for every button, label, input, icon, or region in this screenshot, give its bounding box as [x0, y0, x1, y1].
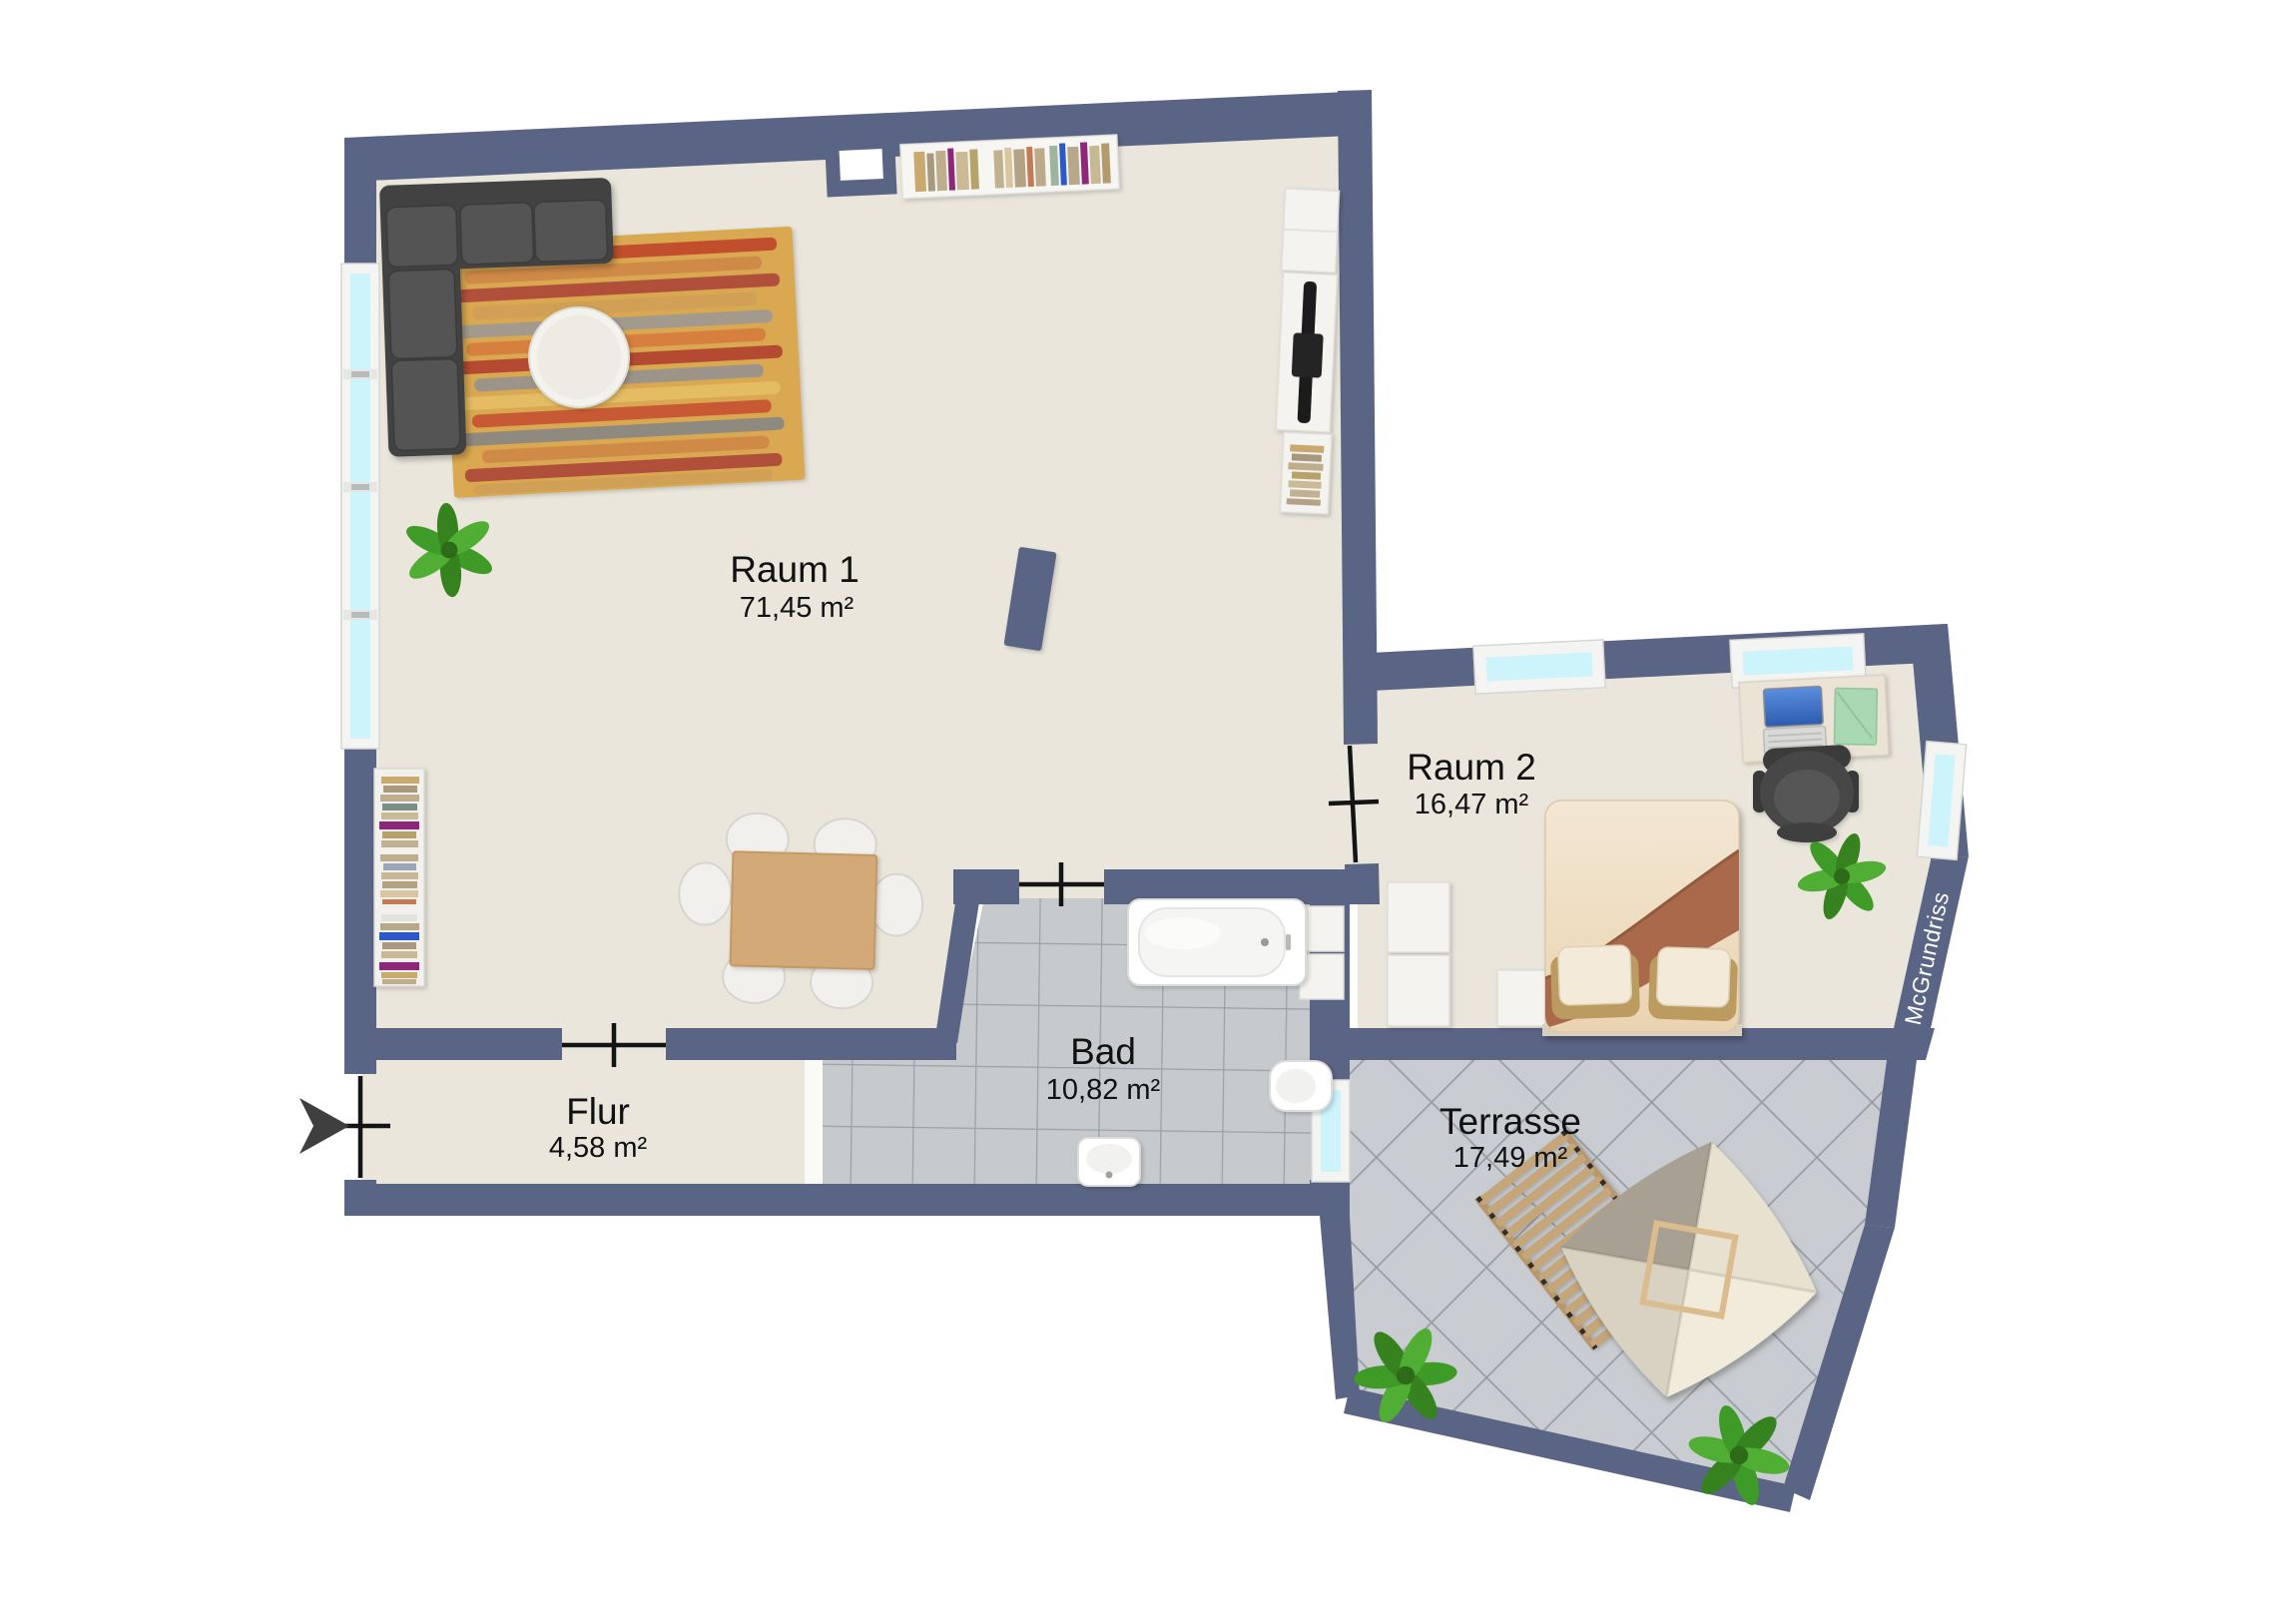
sink — [1078, 1138, 1140, 1186]
area-flur: 4,58 m² — [549, 1132, 648, 1164]
floorplan-page: Raum 1 71,45 m² Raum 2 16,47 m² Bad 10,8… — [0, 0, 2296, 1623]
bathtub — [1128, 899, 1306, 985]
area-raum-1: 71,45 m² — [740, 592, 855, 624]
area-terrasse: 17,49 m² — [1453, 1142, 1568, 1174]
nightstand — [1497, 970, 1545, 1026]
label-bad: Bad — [1070, 1031, 1136, 1072]
label-raum-1: Raum 1 — [730, 549, 860, 590]
bookshelf-left-wall — [374, 769, 424, 986]
area-raum-2: 16,47 m² — [1415, 789, 1529, 820]
dining-table — [730, 851, 876, 969]
label-terrasse: Terrasse — [1439, 1101, 1581, 1142]
bed — [1542, 801, 1742, 1036]
entrance-arrow-icon — [299, 1098, 349, 1154]
entrance — [299, 1074, 390, 1180]
coffee-table — [529, 307, 629, 407]
laptop-icon — [1763, 686, 1823, 727]
window-raum1-left — [341, 264, 379, 749]
wall-niche-raum1-top — [824, 120, 896, 197]
label-flur: Flur — [566, 1091, 630, 1132]
area-bad: 10,82 m² — [1046, 1074, 1161, 1106]
bookshelf-top-wall — [900, 135, 1119, 199]
flur-bad-passage — [805, 1058, 823, 1186]
floorplan-canvas: Raum 1 71,45 m² Raum 2 16,47 m² Bad 10,8… — [0, 0, 2296, 1623]
label-raum-2: Raum 2 — [1407, 747, 1536, 788]
toilet — [1270, 1061, 1332, 1111]
window-raum2-top-1 — [1473, 640, 1605, 694]
